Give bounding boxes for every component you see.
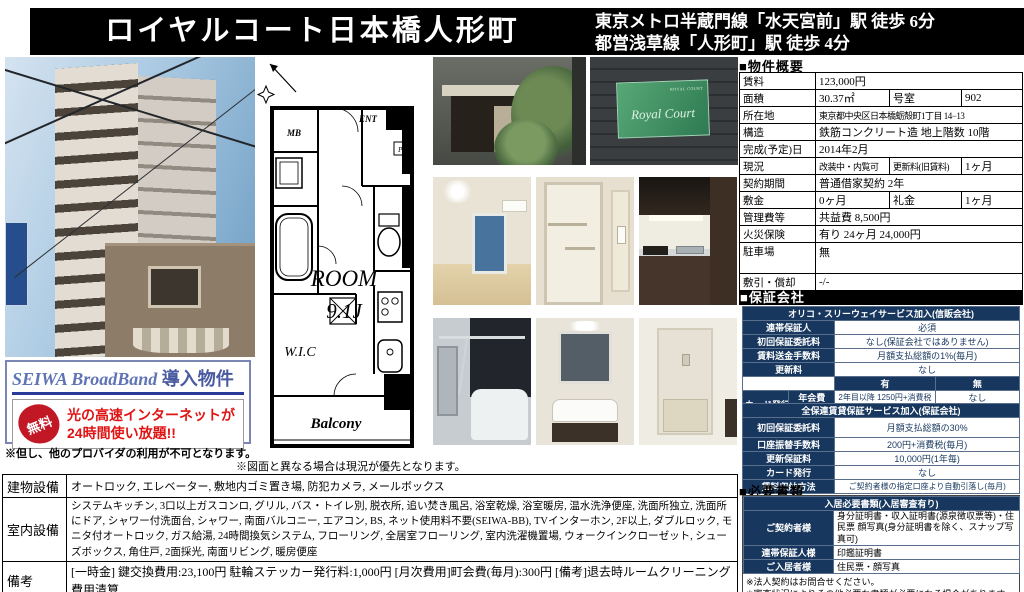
floorplan-note: ※図面と異なる場合は現況が優先となります。 — [236, 458, 504, 474]
broadband-message: 光の高速インターネットが 24時間使い放題!! — [67, 406, 235, 442]
facilities-table: 建物設備オートロック, エレベーター, 敷地内ゴミ置き場, 防犯カメラ, メール… — [2, 474, 738, 592]
photo-entrance — [433, 57, 586, 165]
label-room-size: 9.1J — [326, 299, 363, 323]
table-row: ご契約者様身分証明書・収入証明書(源泉徴収票等)・住民票 顔写真(身分証明書を除… — [744, 511, 1020, 546]
table-row: 連帯保証人様印鑑証明書 — [744, 545, 1020, 559]
broadband-message-box: 無料 光の高速インターネットが 24時間使い放題!! — [12, 399, 244, 449]
label-room: ROOM — [310, 266, 379, 291]
table-row: 備考[一時金] 鍵交換費用:23,100円 駐輪ステッカー発行料:1,000円 … — [3, 561, 738, 592]
label-mb: MB — [286, 128, 301, 138]
free-stamp-icon: 無料 — [13, 398, 65, 450]
title-bar: ロイヤルコート日本橋人形町 東京メトロ半蔵門線「水天宮前」駅 徒歩 6分 都営浅… — [30, 8, 1024, 55]
floorplan-drawing: MB ENT PS W.I.C ROOM 9.1J Balcony — [256, 56, 434, 458]
shop-awning — [133, 328, 229, 352]
property-flyer: ロイヤルコート日本橋人形町 東京メトロ半蔵門線「水天宮前」駅 徒歩 6分 都営浅… — [0, 0, 1024, 592]
broadband-title-ja: 導入物件 — [157, 369, 234, 389]
section-title-guarantee: ■保証会社 — [739, 291, 1023, 305]
table-row: ご入居者様住民票・顔写真 — [744, 559, 1020, 573]
banner-divider — [12, 392, 244, 395]
table-row: 駐車場無 — [740, 243, 1023, 274]
broadband-note: ※但し、他のプロバイダの利用が不可となります。 — [5, 447, 257, 462]
table-row: 賃料送金手数料月額支払総額の1%(毎月) — [743, 349, 1020, 363]
documents-notes: ※法人契約はお問合せください。 ※審査状況によりその他必要な書類が必要になる場合… — [743, 574, 1019, 592]
neighbor-building — [105, 243, 255, 357]
access-line-1: 東京メトロ半蔵門線「水天宮前」駅 徒歩 6分 — [595, 11, 935, 33]
label-ps: PS — [397, 146, 406, 154]
table-row: 連帯保証人必須 — [743, 321, 1020, 335]
broadband-title-en: SEIWA BroadBand — [12, 369, 157, 389]
compass-icon — [258, 64, 296, 103]
photo-nameplate: ROYAL COURT Royal Court — [590, 57, 738, 165]
table-row: 敷引・償却-/- — [740, 274, 1023, 291]
table-row: 初回保証委託料なし(保証会社ではありません) — [743, 335, 1020, 349]
table-row: 敷金0ヶ月礼金1ヶ月 — [740, 192, 1023, 209]
documents-table: 入居必要書類(入居審査有り) ご契約者様身分証明書・収入証明書(源泉徴収票等)・… — [743, 496, 1020, 574]
street-sign — [5, 222, 28, 306]
table-row: 口座振替手数料200円+消費税(毎月) — [743, 438, 1020, 452]
table-row: 構造鉄筋コンクリート造 地上階数 10階 — [740, 124, 1023, 141]
label-ent: ENT — [358, 114, 378, 124]
table-row: 有無 — [743, 377, 1020, 391]
access-line-2: 都営浅草線「人形町」駅 徒歩 4分 — [595, 33, 935, 55]
table-row: 所在地東京都中央区日本橋蛎殻町1丁目 14−13 — [740, 107, 1023, 124]
documents-box: 入居必要書類(入居審査有り) ご契約者様身分証明書・収入証明書(源泉徴収票等)・… — [742, 495, 1020, 592]
table-row: 管理費等共益費 8,500円 — [740, 209, 1023, 226]
photo-laundry-space — [639, 318, 737, 445]
table-row: 火災保険有り 24ヶ月 24,000円 — [740, 226, 1023, 243]
building-nameplate-sign: ROYAL COURT Royal Court — [616, 79, 710, 138]
table-row: オリコ・スリーウェイサービス加入(信販会社) — [743, 307, 1020, 321]
photo-kitchen — [639, 177, 737, 305]
table-row: 契約期間普通借家契約 2年 — [740, 175, 1023, 192]
table-row: 面積30.37㎡号室902 — [740, 90, 1023, 107]
table-row: 室内設備システムキッチン, 3口以上ガスコンロ, グリル, バス・トイレ別, 脱… — [3, 498, 738, 562]
photo-walk-in-closet — [536, 177, 634, 305]
neighbor-window — [148, 266, 201, 308]
photo-living-room — [433, 177, 531, 305]
overview-table: 賃料123,000円 面積30.37㎡号室902 所在地東京都中央区日本橋蛎殻町… — [739, 72, 1023, 291]
table-row: 現況改装中・内覧可更新料(旧賃料)1ヶ月 — [740, 158, 1023, 175]
property-title: ロイヤルコート日本橋人形町 — [30, 8, 595, 55]
photo-bathroom — [433, 318, 531, 445]
table-row: 全保連賃貸保証サービス加入(保証会社) — [743, 404, 1020, 418]
table-row: 建物設備オートロック, エレベーター, 敷地内ゴミ置き場, 防犯カメラ, メール… — [3, 475, 738, 498]
photo-washbasin — [536, 318, 634, 445]
table-row: 完成(予定)日2014年2月 — [740, 141, 1023, 158]
broadband-banner: SEIWA BroadBand 導入物件 無料 光の高速インターネットが 24時… — [5, 360, 251, 444]
station-access: 東京メトロ半蔵門線「水天宮前」駅 徒歩 6分 都営浅草線「人形町」駅 徒歩 4分 — [595, 8, 935, 55]
label-balcony: Balcony — [310, 416, 362, 432]
photo-building-exterior — [5, 57, 255, 357]
table-row: 賃料123,000円 — [740, 73, 1023, 90]
table-row: カード発行なし — [743, 466, 1020, 480]
table-row: 更新保証料10,000円(1年毎) — [743, 452, 1020, 466]
label-wic: W.I.C — [284, 345, 316, 360]
table-row: 初回保証委託料月額支払総額の30% — [743, 418, 1020, 438]
table-row: 更新料なし — [743, 363, 1020, 377]
broadband-title: SEIWA BroadBand 導入物件 — [12, 365, 244, 391]
table-row: 入居必要書類(入居審査有り) — [744, 497, 1020, 511]
